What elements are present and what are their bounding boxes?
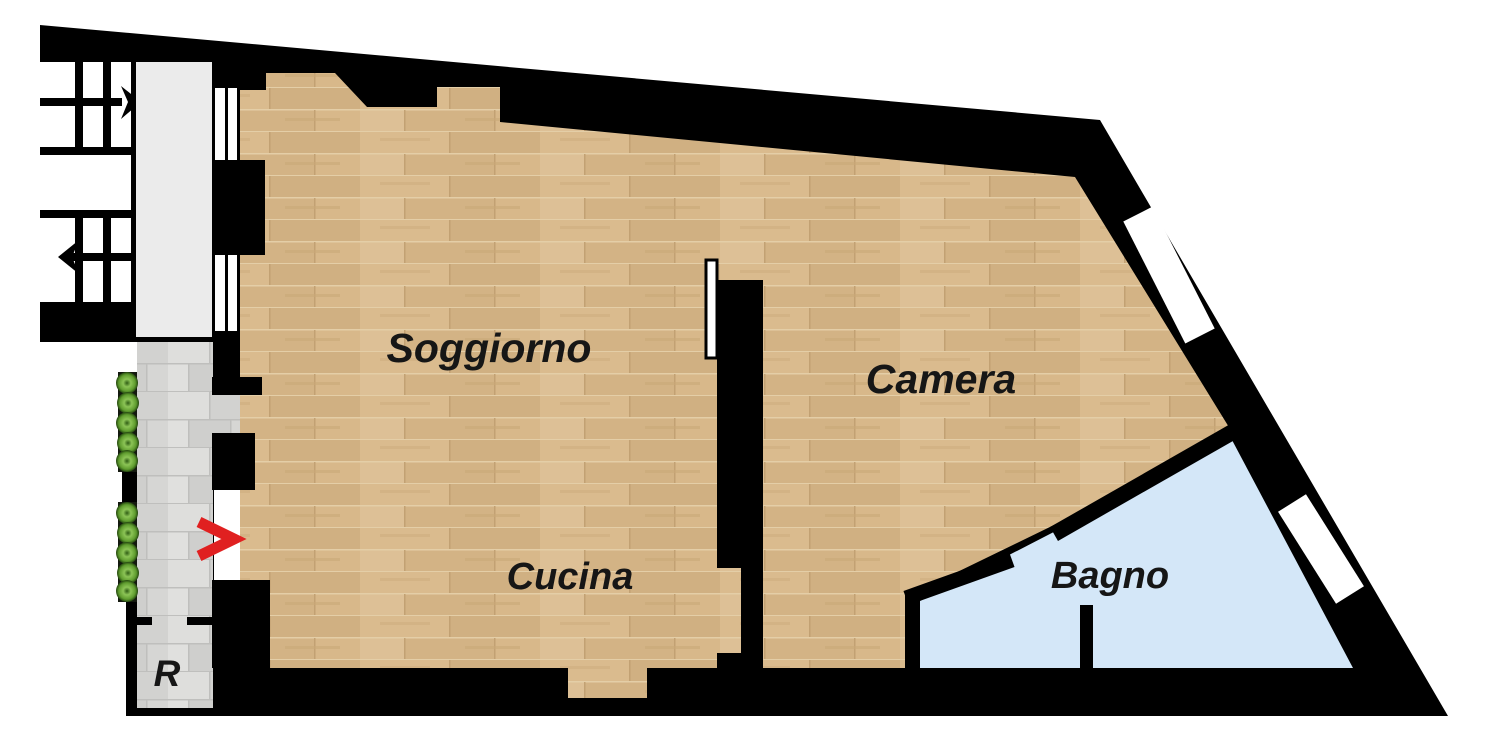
wall-entry-mid xyxy=(212,433,255,490)
wall-terrace-stub xyxy=(122,472,137,502)
door-leaf-soggiorno-camera xyxy=(706,260,717,358)
wall-soggiorno-camera-2 xyxy=(741,568,763,653)
stair-rail xyxy=(103,210,111,302)
window-landing-bottom-mullion xyxy=(225,255,228,331)
wall-entry-upper xyxy=(212,377,262,395)
floor-plan-page: Soggiorno Cucina Camera Bagno R xyxy=(0,0,1487,752)
stair-rail xyxy=(103,62,111,155)
stair-landing-divider xyxy=(131,62,136,342)
stair-step-line xyxy=(40,210,131,218)
room-label-soggiorno: Soggiorno xyxy=(387,325,592,371)
floor-plan: Soggiorno Cucina Camera Bagno R xyxy=(0,0,1487,752)
wall-bagno-inner-stub xyxy=(1080,605,1093,668)
wall-top-left-patch xyxy=(240,72,266,90)
wall-soggiorno-camera-1 xyxy=(717,280,763,568)
wall-cucina-left xyxy=(212,580,270,668)
room-label-storage: R xyxy=(154,653,181,694)
stairwell xyxy=(40,62,141,342)
window-landing-top-mullion xyxy=(225,88,228,160)
wall-r-room-left-jamb xyxy=(126,617,152,625)
wall-soggiorno-camera-3 xyxy=(717,653,763,668)
stair-rail xyxy=(75,62,83,155)
stair-step-line xyxy=(40,147,131,155)
stair-landing-floor xyxy=(136,62,212,337)
room-label-bagno: Bagno xyxy=(1051,555,1169,597)
room-label-cucina: Cucina xyxy=(507,556,634,598)
wall-window-pier xyxy=(240,160,265,255)
room-label-camera: Camera xyxy=(866,356,1016,402)
wall-r-room-right-jamb xyxy=(187,617,213,625)
stair-rail xyxy=(75,210,83,302)
